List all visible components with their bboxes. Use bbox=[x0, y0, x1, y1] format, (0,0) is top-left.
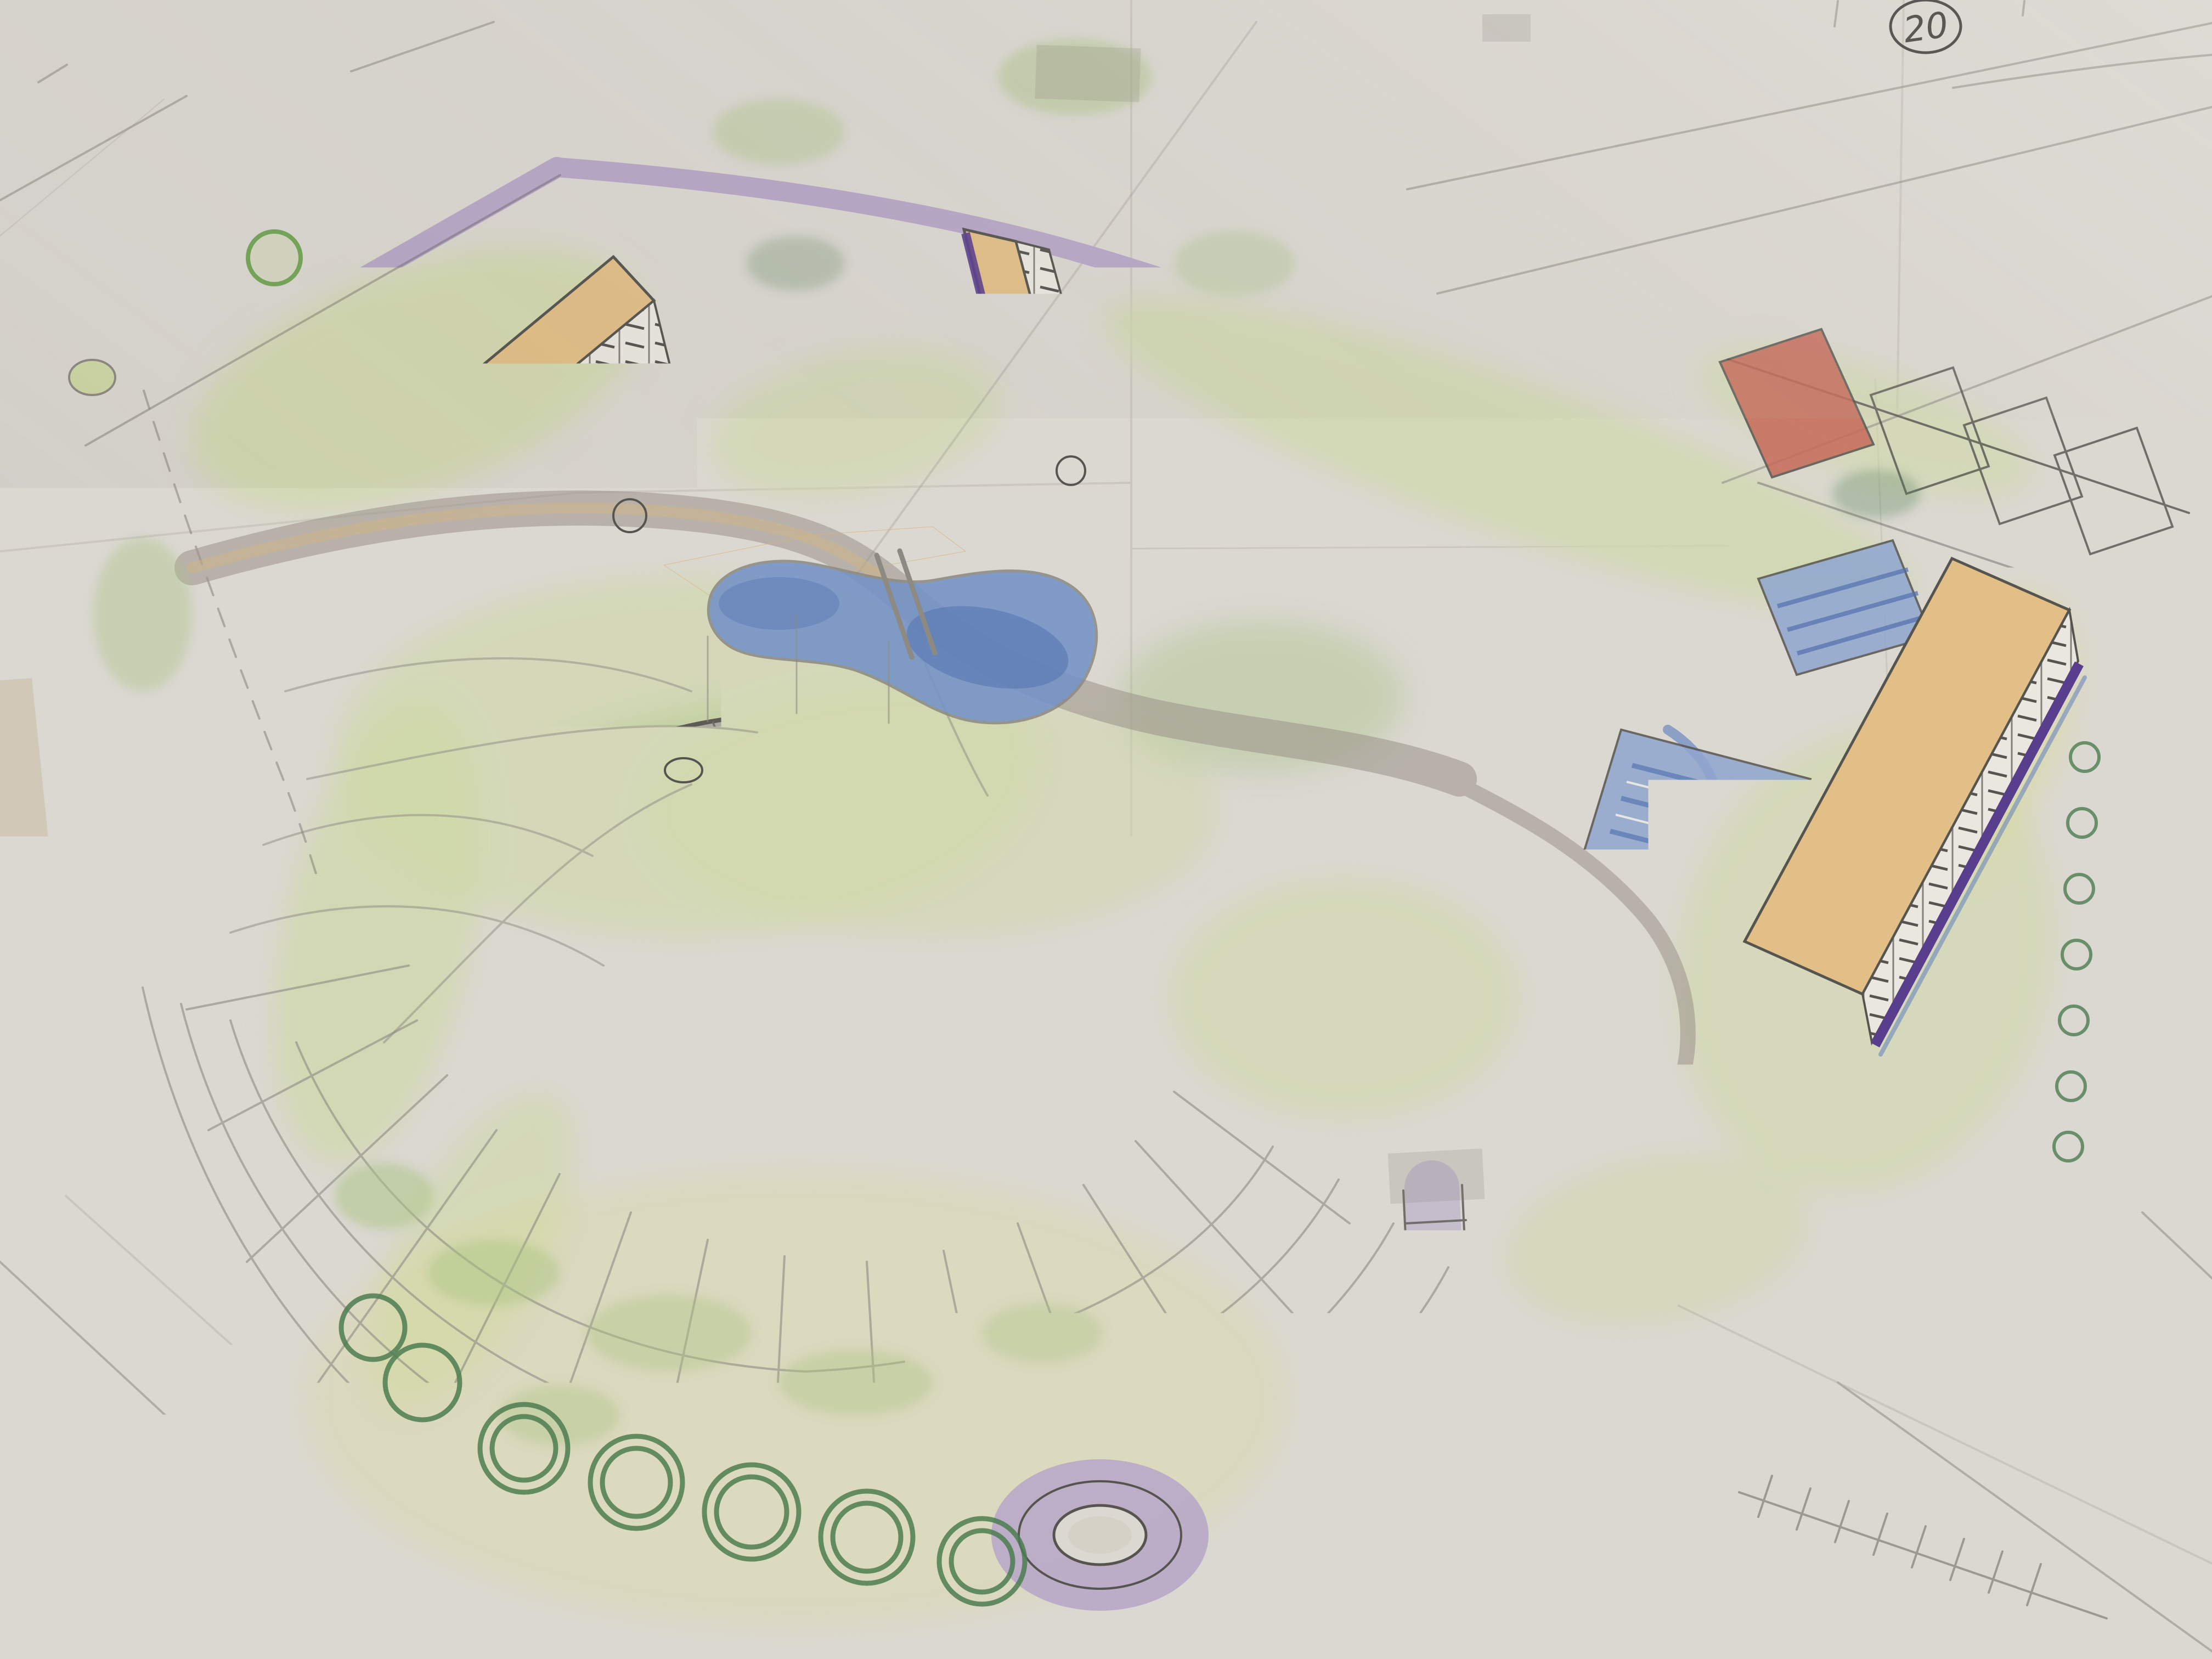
sketch-canvas: 20 bbox=[0, 0, 2212, 1659]
photographed-site-plan-sketch: 20 bbox=[0, 0, 2212, 1659]
photo-vignette bbox=[0, 0, 2212, 1659]
